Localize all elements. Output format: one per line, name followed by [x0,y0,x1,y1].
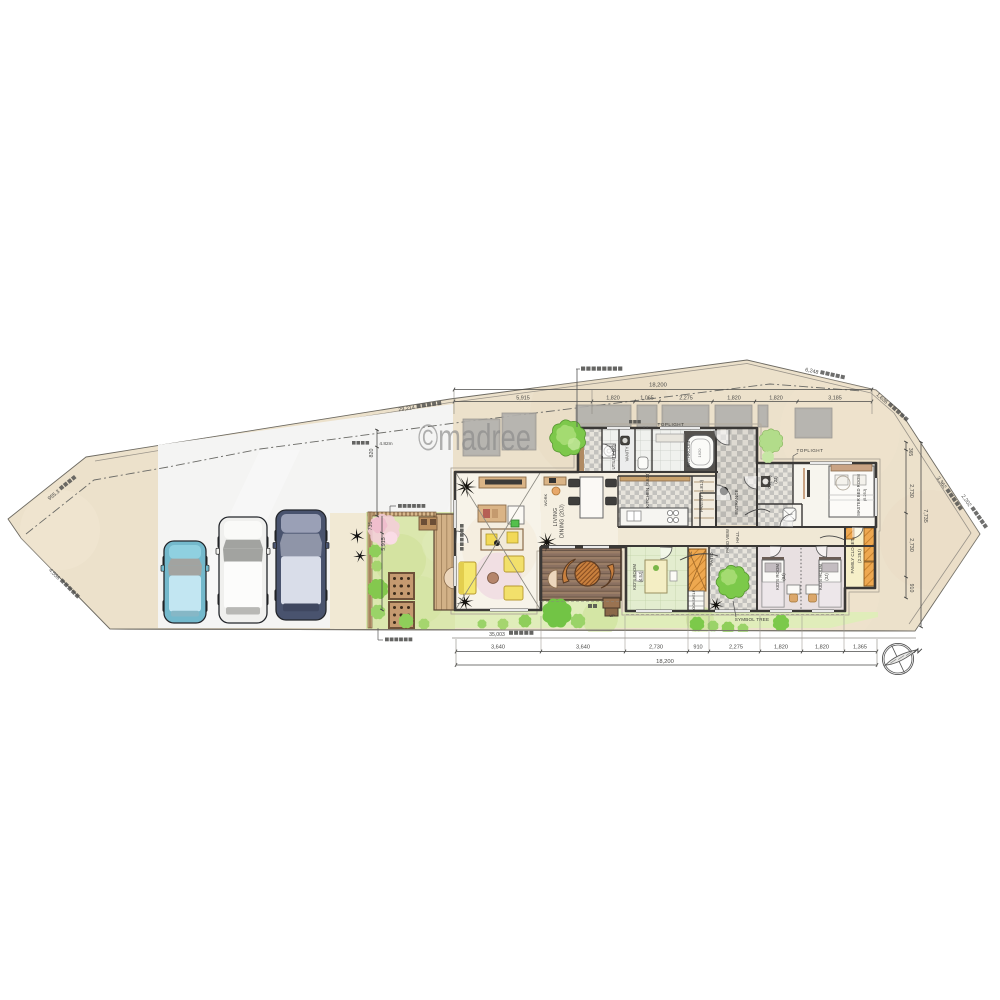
svg-text:5,915: 5,915 [516,396,530,402]
svg-text:(3J): (3J) [824,573,829,581]
svg-text:1,820: 1,820 [774,645,788,651]
svg-text:PATIO: PATIO [709,552,714,566]
svg-text:1,065: 1,065 [640,396,654,402]
svg-text:HALL: HALL [735,531,740,543]
svg-text:4.82m: 4.82m [379,441,392,447]
svg-text:5,915: 5,915 [381,537,387,551]
svg-text:KITCHEN (3.62J): KITCHEN (3.62J) [645,472,650,508]
svg-text:SYMBOL TREE: SYMBOL TREE [735,617,770,622]
svg-text:BATHROOM: BATHROOM [686,441,691,467]
svg-text:BOOKSHELF: BOOKSHELF [692,589,696,612]
svg-text:1,820: 1,820 [769,396,783,402]
svg-text:WORK: WORK [543,493,548,506]
svg-text:2,275: 2,275 [729,645,743,651]
svg-text:18,200: 18,200 [649,383,667,389]
svg-text:1,820: 1,820 [606,396,620,402]
svg-text:2,730: 2,730 [908,538,914,552]
svg-text:UTILITY (2J): UTILITY (2J) [611,444,616,470]
svg-text:1,365: 1,365 [853,645,867,651]
svg-text:3,185: 3,185 [828,396,842,402]
svg-text:(4.5J): (4.5J) [638,571,643,582]
svg-text:1,820: 1,820 [727,396,741,402]
svg-text:TOPLIGHT: TOPLIGHT [658,422,685,427]
svg-text:(5.25J): (5.25J) [862,488,867,501]
svg-text:820: 820 [369,449,375,458]
svg-text:MASTER BED ROOM: MASTER BED ROOM [856,474,861,516]
svg-text:1,820: 1,820 [815,645,829,651]
svg-text:7,735: 7,735 [922,509,928,523]
svg-text:VANITY: VANITY [625,446,630,461]
svg-text:2,730: 2,730 [649,645,663,651]
svg-text:CL: CL [688,551,693,557]
svg-text:TOPLIGHT: TOPLIGHT [797,448,824,453]
svg-text:910: 910 [908,584,914,593]
svg-text:KID'S ROOM: KID'S ROOM [818,564,823,590]
svg-text:(2J): (2J) [773,476,778,484]
svg-text:1620: 1620 [697,448,702,458]
svg-text:LIVING: LIVING [553,508,559,527]
svg-text:UP: UP [609,614,615,618]
svg-text:735: 735 [368,522,374,531]
svg-text:©madree: ©madree [418,417,531,458]
svg-text:(3J): (3J) [781,573,786,581]
svg-text:PANTRY (1.81J): PANTRY (1.81J) [699,479,704,512]
svg-text:365: 365 [907,448,913,457]
svg-text:3,640: 3,640 [491,645,505,651]
svg-text:DINING (20J): DINING (20J) [560,504,566,538]
svg-text:KID'S ROOM: KID'S ROOM [632,564,637,590]
svg-text:PATIO VIEW: PATIO VIEW [725,529,730,553]
svg-text:2,275: 2,275 [679,396,693,402]
svg-text:2,730: 2,730 [908,484,914,498]
svg-text:3,640: 3,640 [576,645,590,651]
svg-text:KID'S ROOM: KID'S ROOM [775,564,780,590]
svg-text:18,200: 18,200 [656,659,674,665]
svg-text:(2.25J): (2.25J) [857,549,862,563]
svg-text:ENTRANCE: ENTRANCE [734,489,739,514]
svg-text:FAMILY CLOSET: FAMILY CLOSET [850,538,855,573]
svg-text:910: 910 [693,645,702,651]
svg-text:CL(sh): CL(sh) [767,475,772,489]
svg-text:35,003: 35,003 [489,632,505,638]
